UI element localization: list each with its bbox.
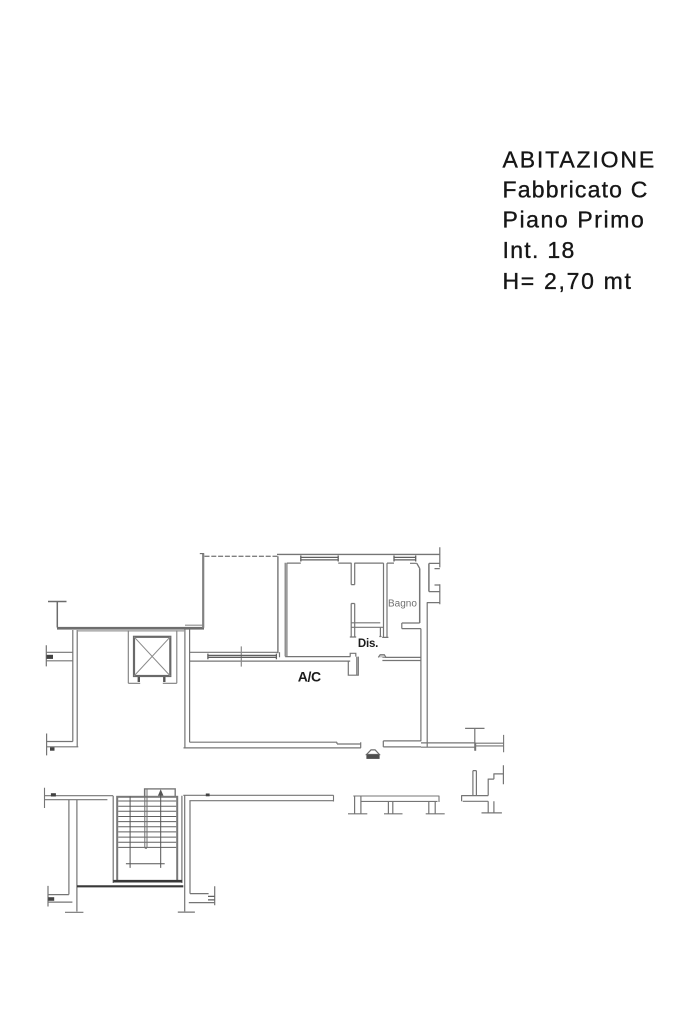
svg-text:A/C: A/C <box>298 669 321 685</box>
svg-text:Dis.: Dis. <box>358 638 378 650</box>
svg-text:Bagno: Bagno <box>388 599 417 610</box>
svg-text:H= 2,70 mt: H= 2,70 mt <box>503 268 633 294</box>
svg-text:Piano Primo: Piano Primo <box>503 207 646 233</box>
svg-text:ABITAZIONE: ABITAZIONE <box>503 147 657 173</box>
svg-text:Fabbricato C: Fabbricato C <box>503 177 649 203</box>
svg-text:Int. 18: Int. 18 <box>503 237 576 263</box>
